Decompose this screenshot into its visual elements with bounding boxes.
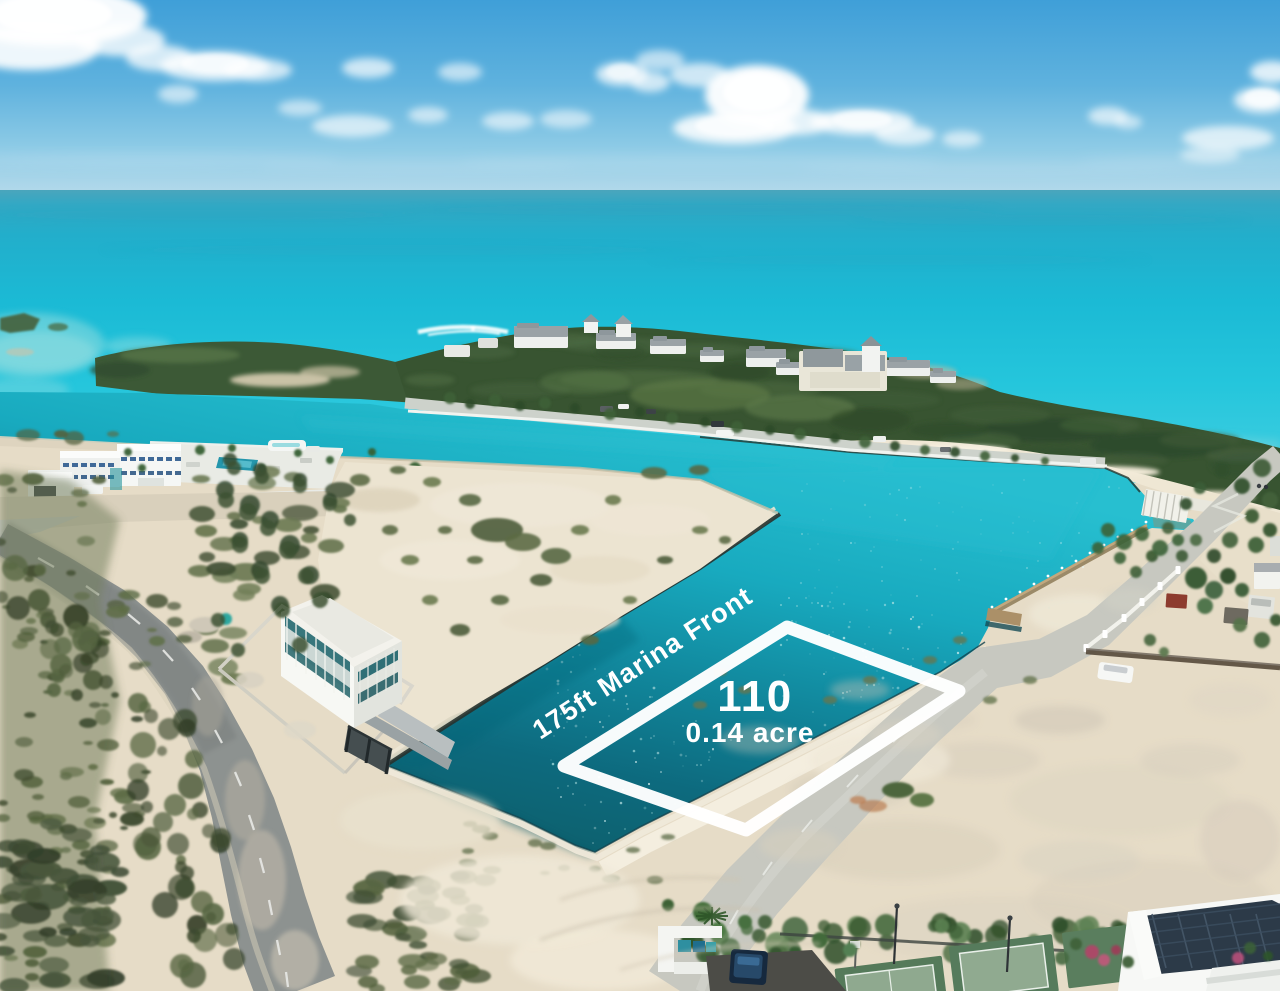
svg-text:110: 110 [717,672,792,721]
svg-text:0.14 acre: 0.14 acre [686,717,815,748]
